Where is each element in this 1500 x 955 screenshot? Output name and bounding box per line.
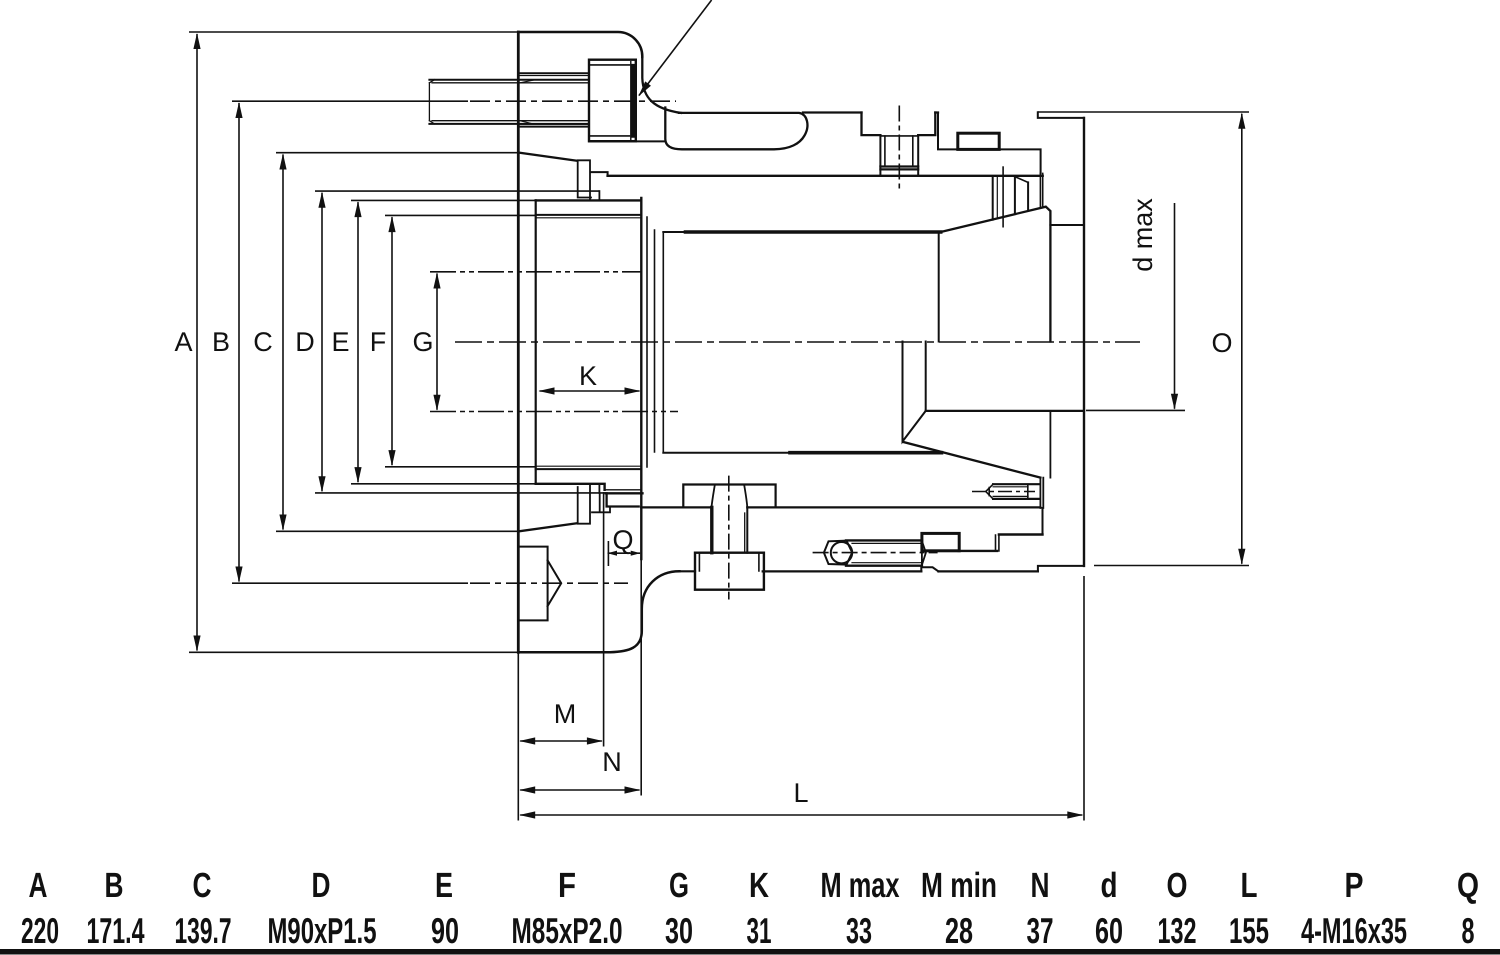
svg-text:K: K bbox=[749, 866, 769, 905]
svg-text:G: G bbox=[669, 866, 689, 905]
svg-text:33: 33 bbox=[846, 910, 872, 951]
svg-text:139.7: 139.7 bbox=[175, 910, 232, 951]
svg-text:C: C bbox=[193, 866, 212, 905]
svg-text:Q: Q bbox=[1457, 866, 1479, 905]
svg-text:M: M bbox=[554, 699, 577, 729]
svg-text:Q: Q bbox=[612, 525, 633, 555]
svg-text:155: 155 bbox=[1229, 910, 1269, 951]
svg-text:E: E bbox=[331, 327, 349, 357]
svg-text:C: C bbox=[253, 327, 273, 357]
svg-text:4-M16x35: 4-M16x35 bbox=[1301, 910, 1407, 951]
svg-text:N: N bbox=[602, 747, 622, 777]
svg-text:d: d bbox=[1101, 866, 1118, 905]
svg-text:M max: M max bbox=[821, 866, 900, 905]
svg-text:8: 8 bbox=[1462, 910, 1475, 951]
svg-text:K: K bbox=[579, 361, 597, 391]
svg-text:M85xP2.0: M85xP2.0 bbox=[512, 910, 623, 951]
svg-text:L: L bbox=[1241, 866, 1258, 905]
svg-text:D: D bbox=[295, 327, 315, 357]
svg-text:G: G bbox=[412, 327, 433, 357]
svg-text:220: 220 bbox=[21, 910, 59, 951]
svg-text:d max: d max bbox=[1128, 198, 1158, 272]
svg-text:132: 132 bbox=[1158, 910, 1197, 951]
svg-text:O: O bbox=[1167, 866, 1188, 905]
svg-text:37: 37 bbox=[1027, 910, 1054, 951]
svg-text:M min: M min bbox=[921, 866, 997, 905]
svg-text:E: E bbox=[435, 866, 453, 905]
svg-text:B: B bbox=[105, 866, 124, 905]
svg-text:28: 28 bbox=[945, 910, 973, 951]
svg-text:A: A bbox=[29, 866, 48, 905]
svg-text:N: N bbox=[1031, 866, 1050, 905]
svg-text:F: F bbox=[558, 866, 576, 905]
svg-text:31: 31 bbox=[747, 910, 772, 951]
svg-text:171.4: 171.4 bbox=[87, 910, 145, 951]
svg-text:60: 60 bbox=[1095, 910, 1123, 951]
svg-text:L: L bbox=[793, 778, 808, 808]
svg-text:90: 90 bbox=[431, 910, 459, 951]
svg-text:F: F bbox=[370, 327, 387, 357]
svg-text:A: A bbox=[174, 327, 192, 357]
svg-text:M90xP1.5: M90xP1.5 bbox=[268, 910, 377, 951]
svg-text:B: B bbox=[212, 327, 230, 357]
svg-text:P: P bbox=[1345, 866, 1364, 905]
svg-text:30: 30 bbox=[665, 910, 693, 951]
svg-text:O: O bbox=[1211, 328, 1232, 358]
svg-text:D: D bbox=[312, 866, 331, 905]
